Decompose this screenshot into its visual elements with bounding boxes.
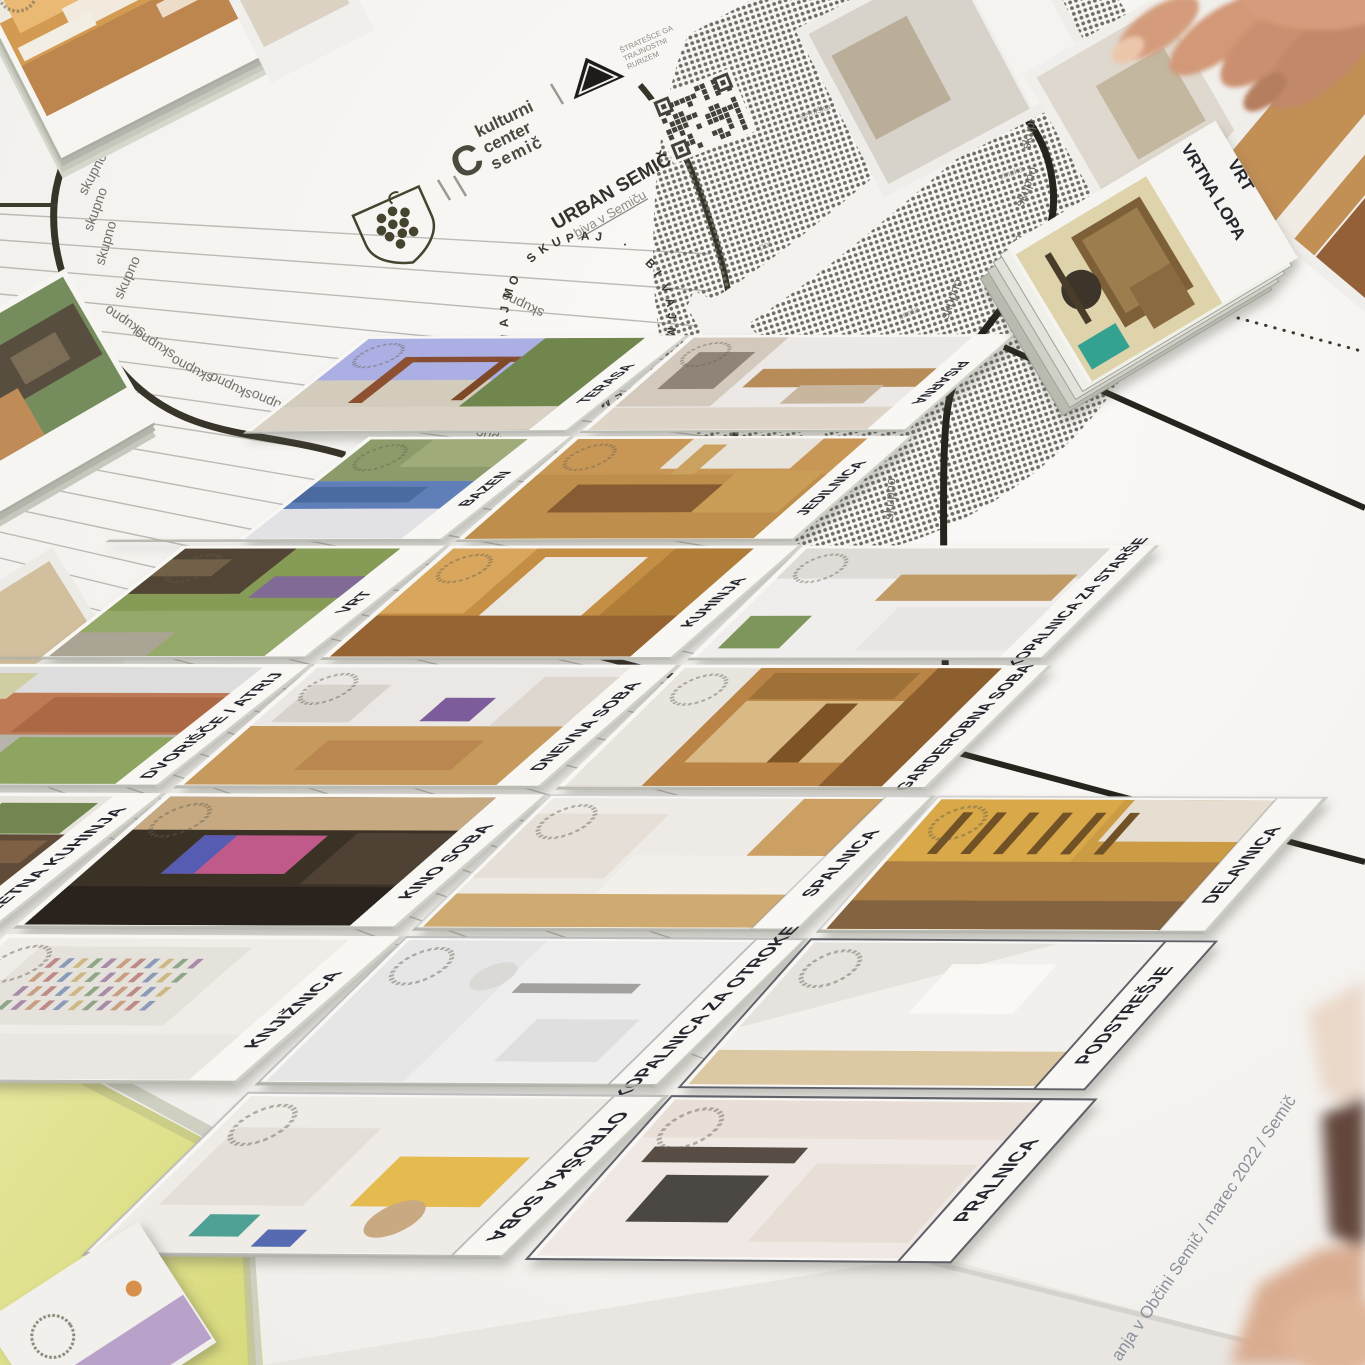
svg-text:A: A <box>497 318 512 328</box>
svg-text:A: A <box>580 229 590 244</box>
svg-text:J: J <box>497 305 512 313</box>
svg-text:skupno: skupno <box>881 478 898 521</box>
svg-text:J: J <box>595 229 603 244</box>
svg-text:J: J <box>665 312 680 320</box>
